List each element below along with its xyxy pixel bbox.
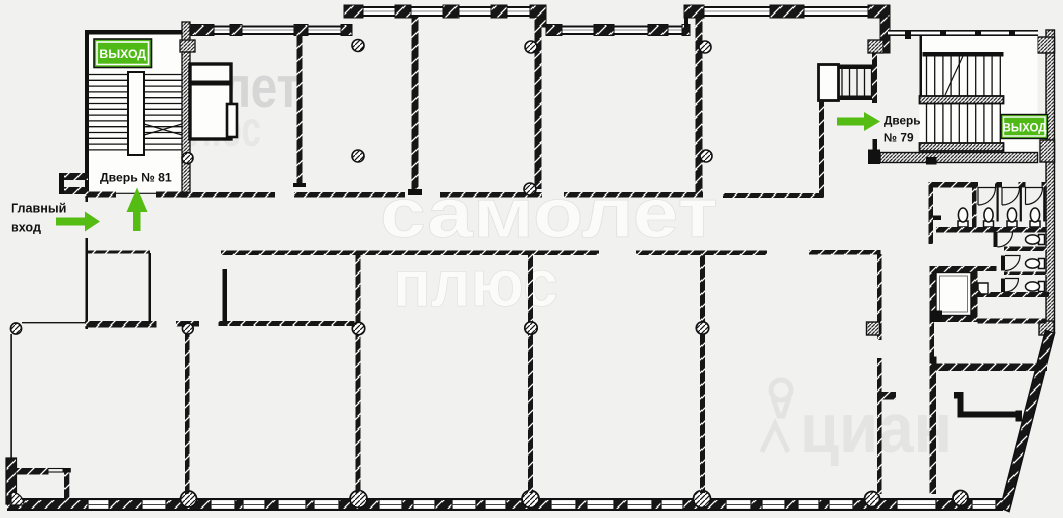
- svg-text:вход: вход: [11, 221, 41, 235]
- svg-text:плюс: плюс: [393, 246, 558, 320]
- svg-text:Главный: Главный: [11, 202, 66, 216]
- svg-text:Дверь: Дверь: [884, 114, 921, 128]
- svg-text:ВЫХОД: ВЫХОД: [1003, 123, 1047, 135]
- svg-text:циан: циан: [800, 389, 952, 467]
- svg-text:Дверь № 81: Дверь № 81: [100, 171, 172, 185]
- svg-text:№ 79: № 79: [884, 131, 914, 145]
- svg-text:ВЫХОД: ВЫХОД: [99, 47, 146, 61]
- svg-text:самолет: самолет: [380, 174, 718, 252]
